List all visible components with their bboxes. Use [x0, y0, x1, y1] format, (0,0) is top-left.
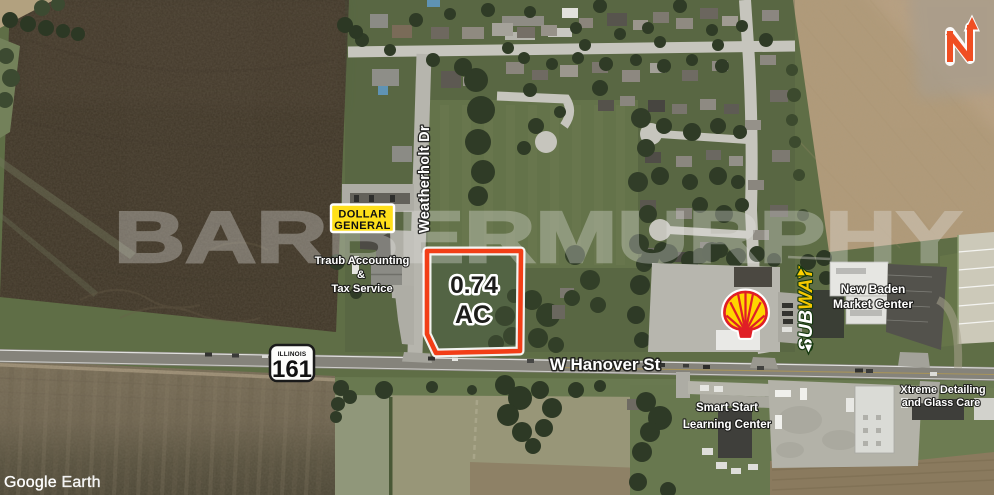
svg-text:AC: AC [455, 301, 491, 329]
svg-text:Google Earth: Google Earth [4, 474, 101, 491]
svg-text:161: 161 [272, 356, 312, 383]
svg-text:Weatherholt Dr: Weatherholt Dr [417, 125, 433, 233]
svg-text:Tax Service: Tax Service [331, 283, 392, 295]
svg-text:&: & [357, 269, 365, 281]
svg-text:0.74: 0.74 [450, 272, 498, 299]
svg-text:W Hanover St: W Hanover St [550, 355, 661, 374]
svg-text:GENERAL: GENERAL [334, 220, 391, 232]
svg-text:Traub Accounting: Traub Accounting [315, 255, 410, 267]
svg-text:Learning Center: Learning Center [683, 419, 772, 431]
svg-text:DOLLAR: DOLLAR [338, 209, 386, 221]
svg-text:Smart Start: Smart Start [696, 402, 758, 414]
svg-text:and Glass Care: and Glass Care [902, 397, 981, 409]
svg-text:BARBERMURPHY: BARBERMURPHY [114, 198, 962, 278]
svg-text:SUBWAY: SUBWAY [795, 265, 817, 351]
svg-text:Xtreme Detailing: Xtreme Detailing [900, 384, 985, 396]
svg-text:Market Center: Market Center [833, 297, 913, 311]
svg-text:New Baden: New Baden [841, 282, 906, 296]
